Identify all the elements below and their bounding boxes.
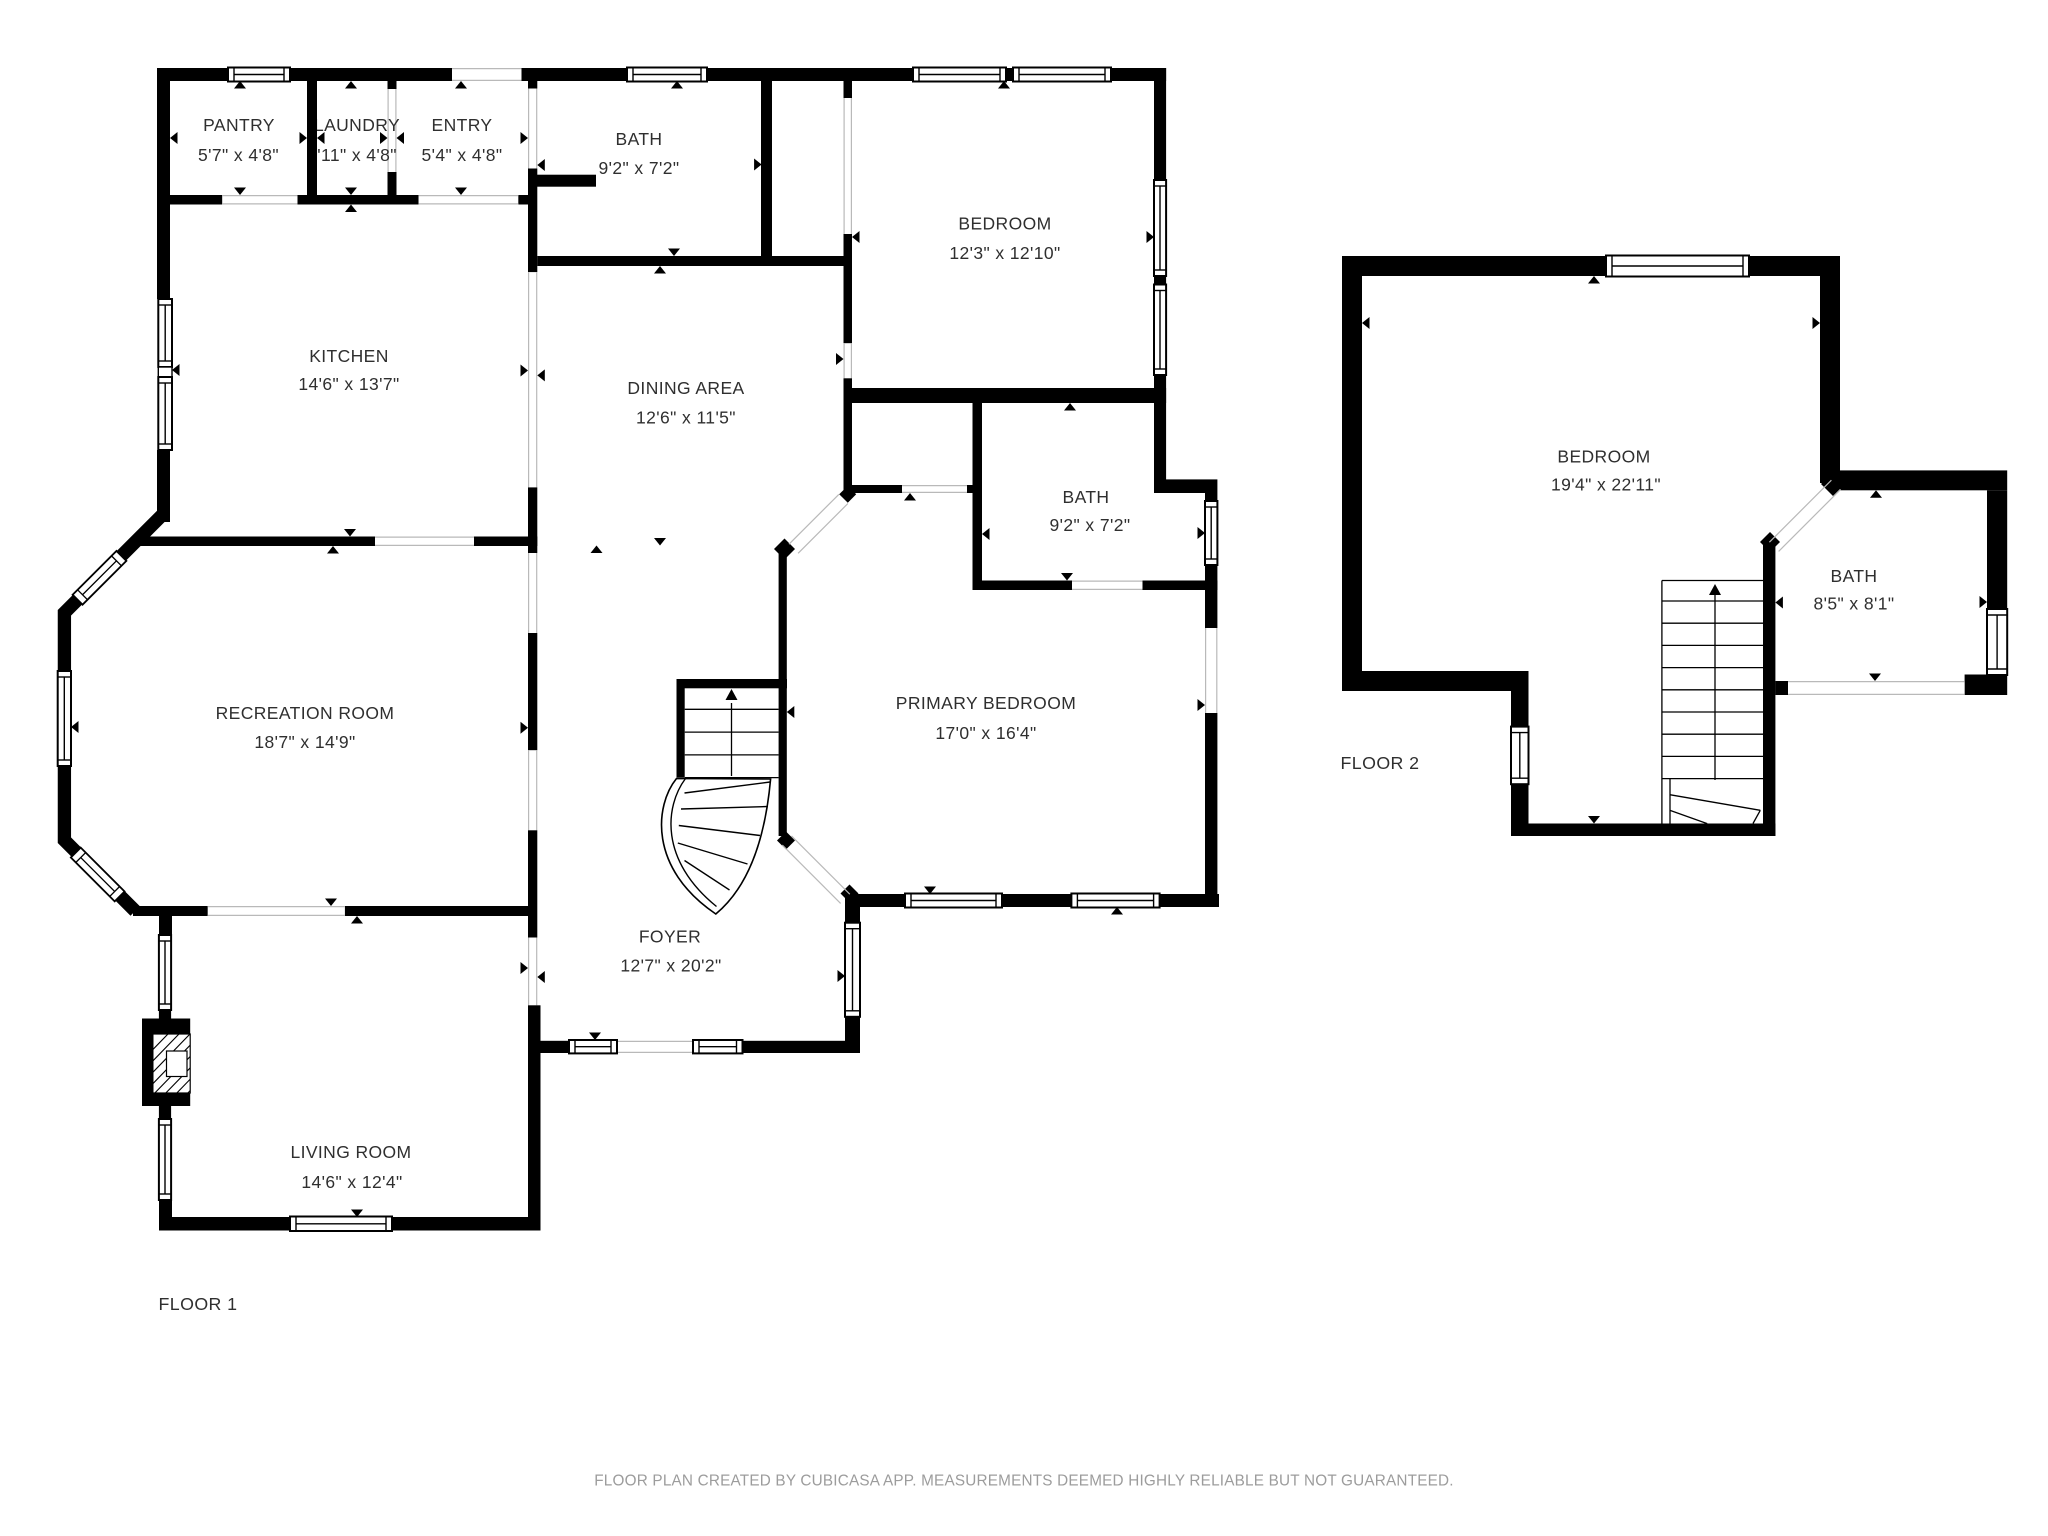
svg-text:FOYER: FOYER xyxy=(639,927,701,947)
svg-text:12'3" x 12'10": 12'3" x 12'10" xyxy=(949,243,1060,263)
svg-text:BATH: BATH xyxy=(1063,487,1110,507)
svg-text:12'6" x 11'5": 12'6" x 11'5" xyxy=(636,408,736,428)
svg-text:BEDROOM: BEDROOM xyxy=(958,214,1051,234)
svg-text:14'6" x 12'4": 14'6" x 12'4" xyxy=(301,1172,402,1192)
svg-text:BEDROOM: BEDROOM xyxy=(1557,447,1650,467)
svg-text:FLOOR 2: FLOOR 2 xyxy=(1341,753,1420,773)
svg-text:9'2" x 7'2": 9'2" x 7'2" xyxy=(1050,515,1131,535)
svg-text:BATH: BATH xyxy=(616,129,663,149)
svg-text:ENTRY: ENTRY xyxy=(432,115,493,135)
svg-text:9'2" x 7'2": 9'2" x 7'2" xyxy=(599,158,680,178)
svg-text:RECREATION ROOM: RECREATION ROOM xyxy=(216,703,395,723)
svg-text:2'11" x 4'8": 2'11" x 4'8" xyxy=(307,145,397,165)
svg-text:18'7" x 14'9": 18'7" x 14'9" xyxy=(254,732,355,752)
svg-text:PRIMARY BEDROOM: PRIMARY BEDROOM xyxy=(896,693,1076,713)
svg-text:17'0" x 16'4": 17'0" x 16'4" xyxy=(935,723,1036,743)
svg-text:DINING AREA: DINING AREA xyxy=(627,378,744,398)
svg-text:PANTRY: PANTRY xyxy=(203,115,275,135)
svg-text:KITCHEN: KITCHEN xyxy=(309,346,389,366)
svg-text:14'6" x 13'7": 14'6" x 13'7" xyxy=(298,374,399,394)
svg-text:12'7" x 20'2": 12'7" x 20'2" xyxy=(620,956,721,976)
svg-text:19'4" x 22'11": 19'4" x 22'11" xyxy=(1551,474,1661,494)
svg-text:FLOOR 1: FLOOR 1 xyxy=(159,1294,238,1314)
svg-text:LAUNDRY: LAUNDRY xyxy=(314,115,400,135)
svg-text:FLOOR PLAN CREATED BY CUBICASA: FLOOR PLAN CREATED BY CUBICASA APP. MEAS… xyxy=(594,1473,1453,1490)
svg-text:5'7" x 4'8": 5'7" x 4'8" xyxy=(198,145,279,165)
svg-text:BATH: BATH xyxy=(1831,566,1878,586)
svg-text:LIVING ROOM: LIVING ROOM xyxy=(290,1142,411,1162)
svg-text:8'5" x 8'1": 8'5" x 8'1" xyxy=(1814,594,1895,614)
svg-text:5'4" x 4'8": 5'4" x 4'8" xyxy=(422,145,503,165)
